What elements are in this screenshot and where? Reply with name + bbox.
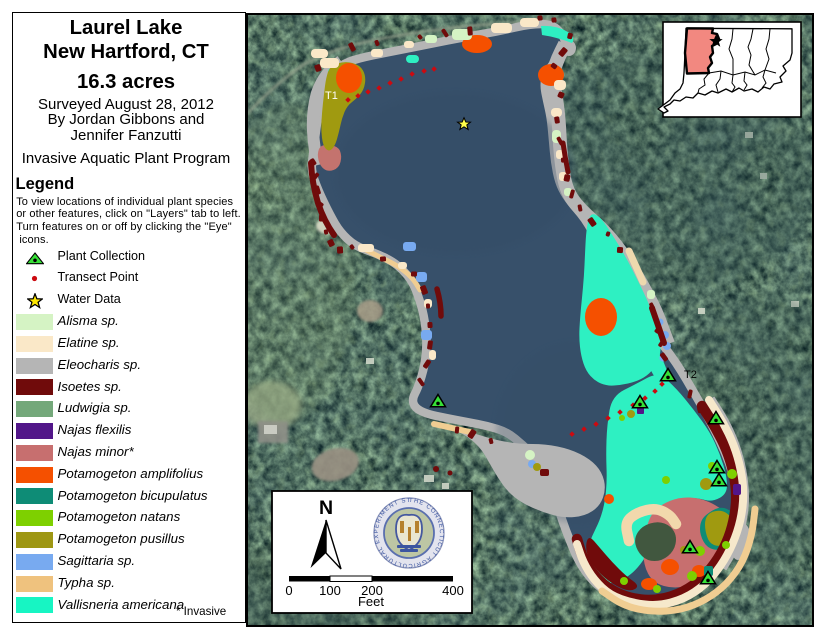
svg-text:T1: T1 — [325, 90, 338, 102]
svg-text:N: N — [319, 497, 333, 519]
svg-text:100: 100 — [319, 583, 341, 598]
svg-text:Feet: Feet — [358, 594, 384, 609]
svg-text:0: 0 — [285, 583, 292, 598]
svg-text:400: 400 — [442, 583, 464, 598]
svg-text:T2: T2 — [684, 369, 697, 381]
